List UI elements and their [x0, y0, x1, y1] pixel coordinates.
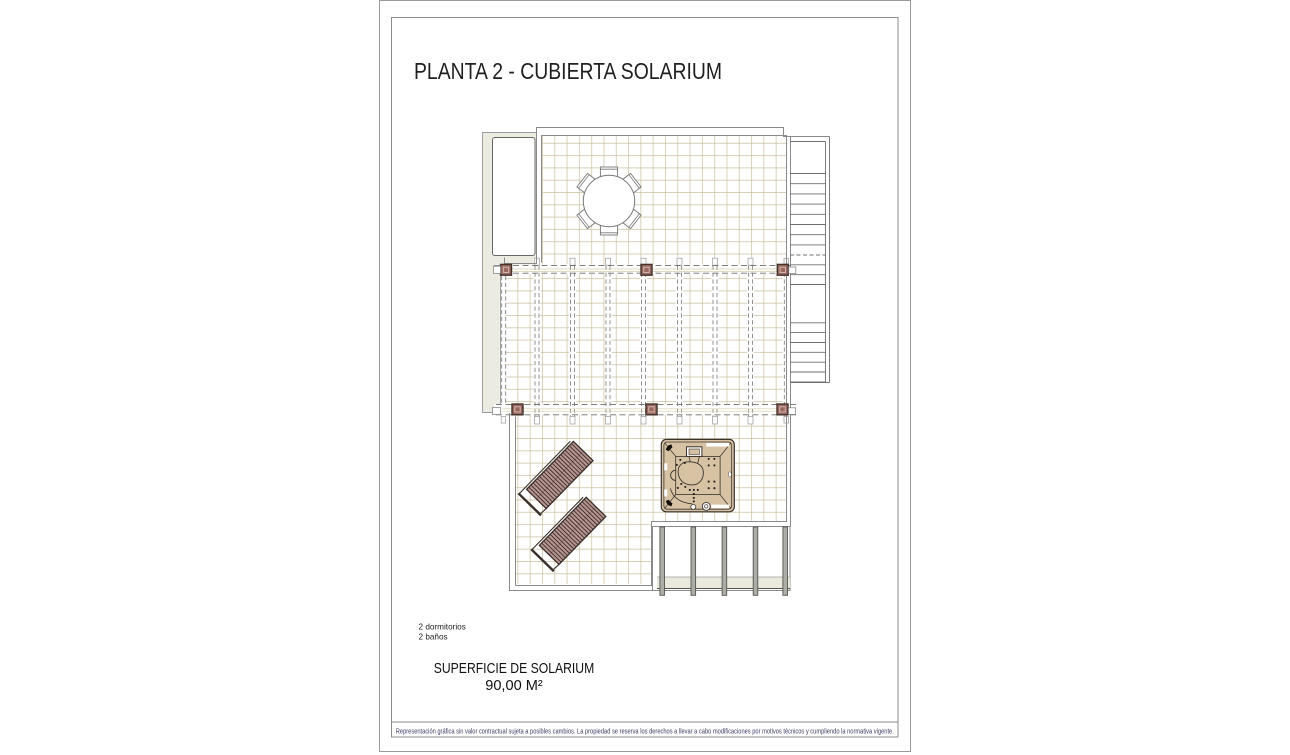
svg-text:2 dormitorios: 2 dormitorios — [419, 623, 466, 632]
svg-text:Representación gráfica sin val: Representación gráfica sin valor contrac… — [396, 729, 894, 736]
svg-text:90,00 M²: 90,00 M² — [485, 678, 543, 694]
svg-text:SUPERFICIE DE SOLARIUM: SUPERFICIE DE SOLARIUM — [434, 661, 595, 677]
svg-text:2 baños: 2 baños — [419, 633, 448, 642]
svg-text:PLANTA 2 - CUBIERTA SOLARIUM: PLANTA 2 - CUBIERTA SOLARIUM — [414, 58, 722, 84]
